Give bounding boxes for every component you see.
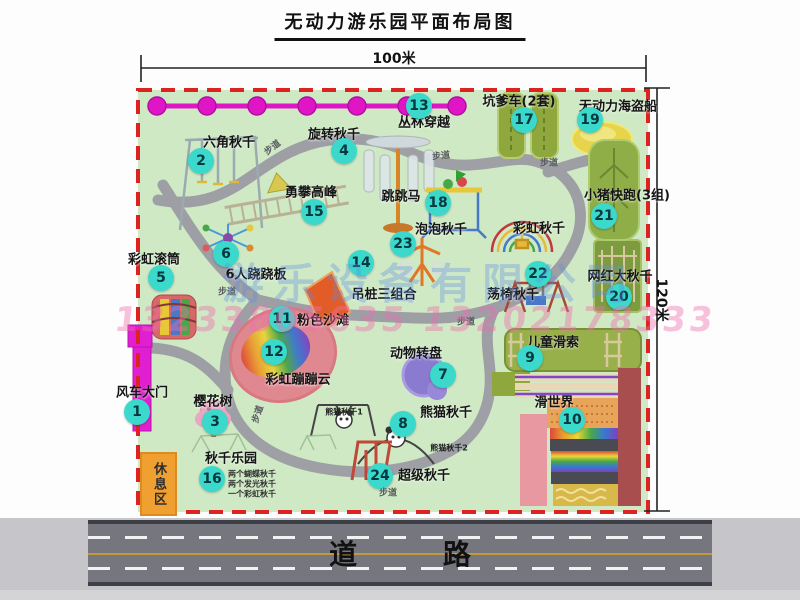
piggy-run-icon	[589, 140, 639, 240]
watermark-phone: 13233805635 13202178333	[112, 300, 718, 340]
rest-area: 休息区	[140, 452, 177, 516]
below-road-strip	[0, 590, 800, 600]
road-label: 道 路	[291, 533, 509, 573]
road: 道 路	[88, 520, 712, 586]
playground-map-poster: 无动力游乐园平面布局图	[0, 0, 800, 600]
dimension-width-label: 100米	[372, 48, 415, 68]
